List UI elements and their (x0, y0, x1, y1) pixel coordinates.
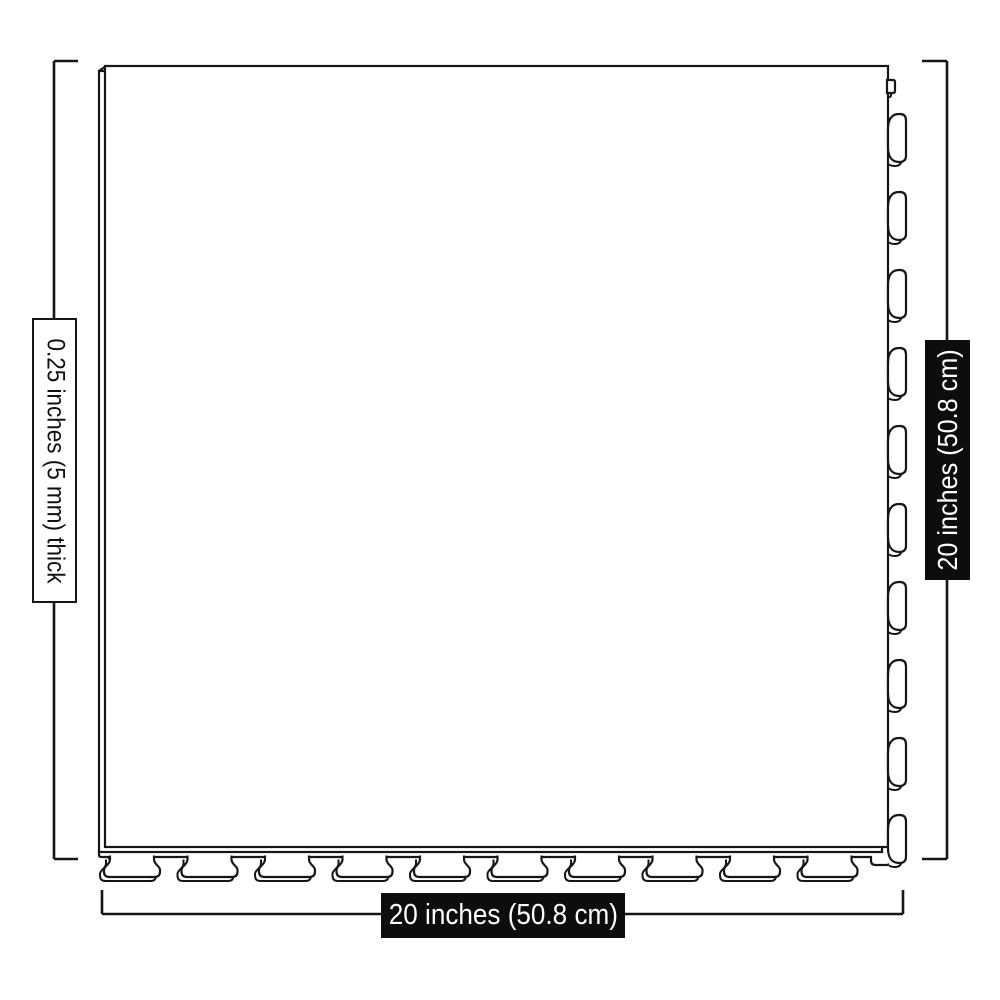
tab-outlines (104, 856, 858, 878)
thickness-label-text: 0.25 inches (5 mm) thick (40, 338, 69, 583)
tile-front-face (105, 66, 888, 847)
tile-face (99, 66, 888, 852)
height-label-text: 20 inches (50.8 cm) (932, 349, 964, 570)
bottom-right-step (871, 856, 891, 865)
width-label-text: 20 inches (50.8 cm) (388, 899, 617, 932)
tile-dimension-diagram: 0.25 inches (5 mm) thick 20 inches (50.8… (0, 0, 1000, 1000)
thickness-label: 0.25 inches (5 mm) thick (32, 318, 77, 603)
height-label: 20 inches (50.8 cm) (925, 340, 970, 580)
corner-notch (887, 80, 895, 93)
bottom-interlock-tabs (100, 856, 858, 882)
tile-drawing (0, 0, 1000, 1000)
width-label: 20 inches (50.8 cm) (381, 893, 625, 938)
